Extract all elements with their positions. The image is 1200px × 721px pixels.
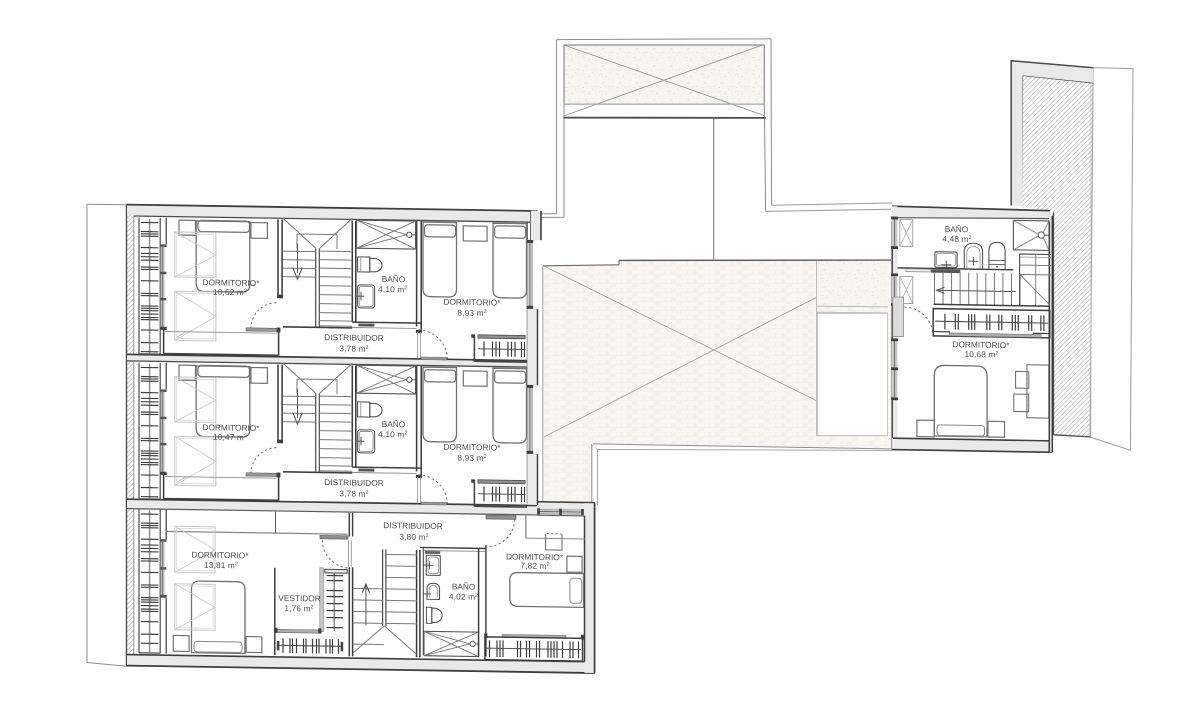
svg-text:VESTIDOR: VESTIDOR — [278, 593, 320, 604]
svg-text:DISTRIBUIDOR: DISTRIBUIDOR — [383, 520, 442, 531]
svg-text:BAÑO: BAÑO — [452, 581, 476, 591]
svg-text:BAÑO: BAÑO — [382, 274, 406, 284]
svg-text:7,82 m2: 7,82 m2 — [520, 560, 549, 570]
svg-text:DISTRIBUIDOR: DISTRIBUIDOR — [324, 477, 383, 488]
svg-text:3,80 m2: 3,80 m2 — [399, 532, 428, 542]
svg-text:13,81 m2: 13,81 m2 — [204, 560, 238, 571]
svg-text:DORMITORIO*: DORMITORIO* — [443, 442, 501, 453]
svg-text:3,78 m2: 3,78 m2 — [339, 488, 368, 498]
svg-text:4,10 m2: 4,10 m2 — [378, 429, 407, 439]
svg-text:10,62 m2: 10,62 m2 — [213, 287, 247, 298]
svg-text:DISTRIBUIDOR: DISTRIBUIDOR — [324, 332, 383, 343]
svg-text:10,47 m2: 10,47 m2 — [213, 432, 247, 443]
svg-text:4,48 m2: 4,48 m2 — [942, 234, 971, 244]
svg-text:4,02 m2: 4,02 m2 — [449, 591, 478, 601]
svg-text:10,68 m2: 10,68 m2 — [964, 349, 998, 360]
svg-text:BAÑO: BAÑO — [382, 419, 406, 429]
svg-text:DORMITORIO*: DORMITORIO* — [443, 297, 501, 308]
svg-text:DORMITORIO*: DORMITORIO* — [191, 549, 249, 560]
svg-text:8,93 m2: 8,93 m2 — [457, 453, 486, 463]
svg-text:1,76 m2: 1,76 m2 — [284, 603, 313, 613]
svg-text:3,78 m2: 3,78 m2 — [339, 343, 368, 353]
svg-text:4,10 m2: 4,10 m2 — [378, 284, 407, 294]
svg-text:8,93 m2: 8,93 m2 — [457, 308, 486, 318]
